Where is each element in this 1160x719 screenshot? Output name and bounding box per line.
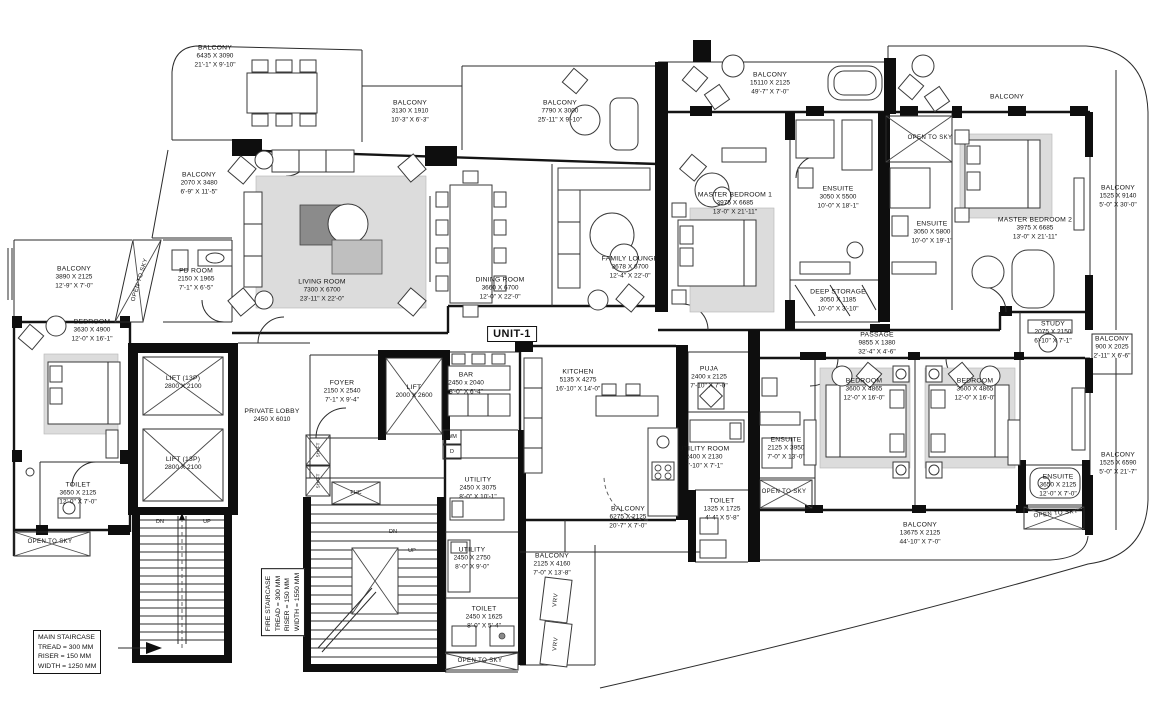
balcony-dining-set [247,60,317,126]
unit-title: UNIT-1 [487,326,537,342]
label-toilet-3: TOILET1325 X 17254'-4" X 5'-8" [704,497,741,524]
label-private-lobby: PRIVATE LOBBY2450 X 6010 [244,407,299,425]
label-master-bedroom-2: MASTER BEDROOM 23975 X 668513'-0" X 21'-… [998,216,1072,243]
family-lounge-furniture [558,168,650,312]
label-foyer: FOYER2150 X 25407'-1" X 9'-4" [324,379,361,406]
shaft-label: SHAFT [316,443,321,458]
label-bedroom-4: BEDROOM3600 X 486512'-0" X 16'-0" [954,377,995,404]
label-balcony-7790: BALCONY7790 X 300025'-11" X 9'-10" [538,99,582,126]
shaft-label: SHAFT [316,474,321,489]
label-balcony-2070: BALCONY2070 X 34806'-9" X 11'-5" [181,171,218,198]
label-bedroom-2: BEDROOM3630 X 490012'-0" X 16'-1" [71,318,112,345]
label-puja: PUJA2400 x 21257'-10" X 7'-0" [690,365,727,392]
toilet-3-fixtures [700,518,726,558]
master-bedroom-1-furniture [672,148,774,312]
lift-block [128,343,238,515]
label-balcony-right-9140: BALCONY1525 X 91405'-0" X 30'-0" [1099,184,1136,211]
vrv-unit: VRV [539,620,572,667]
label-toilet-2: TOILET3650 X 212512'-0" X 7'-0" [59,481,96,508]
label-study: STUDY2075 X 21506'-10" X 7'-1" [1034,320,1071,347]
label-pd-room: PD ROOM2150 X 19657'-1" X 6'-5" [178,267,215,294]
label-passage: PASSAGE9855 X 138032'-4" X 4'-6" [858,331,895,358]
label-family-lounge: FAMILY LOUNGE3678 X 670012'-4" X 22'-0" [602,255,659,282]
label-ensuite-b3: ENSUITE2125 X 39507'-0" X 13'-0" [767,436,804,463]
vrv-unit: VRV [539,576,572,623]
open-to-sky-label: OPEN TO SKY [762,489,807,495]
label-balcony-3890: BALCONY3890 X 212512'-9" X 7'-0" [55,265,92,292]
fire-staircase-note: FIRE STAIRCASE TREAD = 300 MM RISER = 15… [261,568,305,636]
open-to-sky-label: OPEN TO SKY [28,539,73,545]
fire-stair-up-label: UP [408,548,416,554]
label-balcony-3130: BALCONY3130 X 191010'-3" X 6'-3" [391,99,428,126]
label-balcony-top-left: BALCONY 6435 X 3090 21'-1" X 9'-10" [194,44,235,71]
main-stair-dn-label: DN [156,519,164,525]
label-ensuite-b4: ENSUITE3650 X 212512'-0" X 7'-0" [1039,473,1076,500]
label-balcony-right-6590: BALCONY1525 X 65905'-0" X 21'-7" [1099,451,1136,478]
label-kitchen: KITCHEN5135 X 427516'-10" X 14'-0" [556,368,601,395]
label-bar: BAR2450 x 20408'-0" X 6'-4" [448,371,484,398]
main-staircase [118,512,232,663]
label-utility-room: UTILITY ROOM2400 X 21307'-10" X 7'-1" [679,445,730,472]
bedroom-4-furniture [925,362,1085,478]
label-lift-a: LIFT (13P)2800 X 2100 [165,374,202,392]
kitchen-furniture [524,358,678,516]
label-toilet-1625: TOILET2450 X 16258'-0" X 5'-4" [466,605,503,632]
open-to-sky-label: OPEN TO SKY [908,135,953,141]
label-ensuite-m2: ENSUITE3050 X 580010'-0" X 19'-1" [911,220,952,247]
label-balcony-900: BALCONY900 X 20252'-11" X 6'-6" [1094,335,1131,362]
label-utility-2: UTILITY2450 X 27508'-0" X 9'-0" [454,546,491,573]
utility-room-furniture [690,420,744,442]
fhc-label: FHC [350,490,361,496]
label-ensuite-m1: ENSUITE3050 X 550010'-0" X 18'-1" [817,185,858,212]
label-deep-storage: DEEP STORAGE3050 X 118510'-0" X 3'-10" [810,288,866,315]
label-balcony-top-right: BALCONY [990,92,1024,101]
label-bedroom-3: BEDROOM3600 X 486512'-0" X 16'-0" [843,377,884,404]
label-master-bedroom-1: MASTER BEDROOM 13975 X 668513'-0" X 21'-… [698,191,772,218]
label-balcony-4160: BALCONY2125 X 41607'-0" X 13'-8" [533,552,570,579]
label-lift-c: LIFT2000 X 2600 [396,383,433,401]
label-utility-1: UTILITY2450 X 30758'-0" X 10'-1" [459,476,496,503]
dryer-label: D [450,449,454,455]
label-balcony-6275: BALCONY6275 X 212520'-7" X 7'-0" [609,505,646,532]
label-balcony-15110: BALCONY15110 X 212549'-7" X 7'-0" [750,71,790,98]
main-stair-up-label: UP [203,519,211,525]
label-living-room: LIVING ROOM7300 X 670023'-11" X 22'-0" [298,278,346,305]
open-to-sky-label: OPEN TO SKY [458,658,503,664]
fire-staircase [303,497,445,672]
label-lift-b: LIFT (13P)2800 X 2100 [165,455,202,473]
washing-machine-label: WM [447,434,457,440]
fire-stair-dn-label: DN [389,529,397,535]
label-balcony-13675: BALCONY13675 X 212544'-10" X 7'-0" [899,521,940,548]
label-dining-room: DINING ROOM3660 X 670012'-0" X 22'-0" [475,276,524,303]
main-staircase-note: MAIN STAIRCASE TREAD = 300 MM RISER = 15… [33,630,101,674]
floor-plan: UNIT-1 BALCONY 6435 X 3090 21'-1" X 9'-1… [0,0,1160,719]
